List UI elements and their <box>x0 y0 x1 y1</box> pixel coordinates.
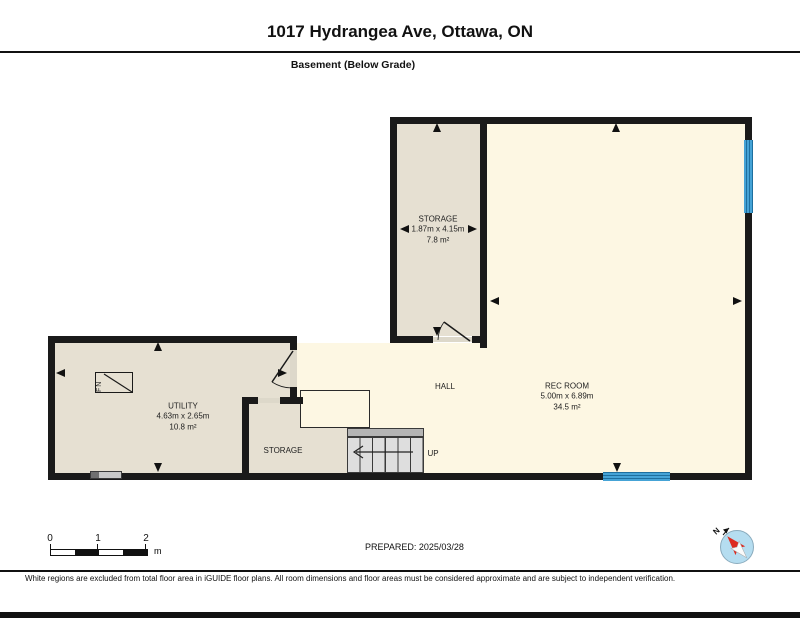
scale-bar-segments <box>50 549 148 556</box>
room-label-rec-room: REC ROOM 5.00m x 6.89m 34.5 m² <box>541 381 594 412</box>
wall <box>390 117 397 343</box>
wall <box>472 336 487 343</box>
room-label-hall: HALL <box>435 382 455 392</box>
wall <box>242 397 249 473</box>
room-area: 7.8 m² <box>427 235 450 244</box>
prepared-date: PREPARED: 2025/03/28 <box>365 542 464 552</box>
footer-divider <box>0 570 800 572</box>
wall <box>48 336 55 480</box>
bottom-bar <box>0 612 800 618</box>
room-dims: 4.63m x 2.65m <box>157 412 210 421</box>
scale-segment <box>99 550 123 555</box>
wall <box>290 343 297 350</box>
window <box>744 140 753 213</box>
scale-segment <box>51 550 75 555</box>
furnace-label: FN <box>96 374 103 392</box>
door-opening <box>258 398 280 403</box>
electrical-panel <box>90 471 122 479</box>
wall <box>390 336 433 343</box>
door-opening <box>433 337 472 342</box>
stairs-up-label: UP <box>427 449 438 459</box>
under-stair-closet <box>300 390 370 428</box>
scale-bar: 0 1 2 m <box>44 533 174 559</box>
room-label-utility: UTILITY 4.63m x 2.65m 10.8 m² <box>157 401 210 432</box>
room-name: REC ROOM <box>545 381 589 390</box>
room-rec-floor <box>480 124 745 473</box>
scale-tick-label: 2 <box>143 533 149 544</box>
wall <box>48 336 297 343</box>
floor-plan: FN STORAGE 1.87m x 4.15m 7.8 m² UTILITY … <box>0 0 800 618</box>
room-name: STORAGE <box>419 214 458 223</box>
room-area: 10.8 m² <box>169 422 196 431</box>
room-area: 34.5 m² <box>553 402 580 411</box>
wall <box>280 397 303 404</box>
stairs <box>347 437 424 473</box>
room-dims: 5.00m x 6.89m <box>541 392 594 401</box>
wall <box>480 117 487 348</box>
door-opening <box>290 350 297 387</box>
disclaimer-text: White regions are excluded from total fl… <box>25 574 675 583</box>
room-label-storage-bottom: STORAGE <box>264 446 303 456</box>
stairs-landing-edge <box>347 428 424 437</box>
room-name: UTILITY <box>168 401 198 410</box>
room-dims: 1.87m x 4.15m <box>412 225 465 234</box>
electrical-panel-detail <box>91 472 99 478</box>
wall <box>242 397 258 404</box>
scale-unit: m <box>154 546 162 556</box>
wall <box>390 117 752 124</box>
scale-tick-label: 0 <box>47 533 53 544</box>
scale-segment <box>123 550 147 555</box>
scale-segment <box>75 550 99 555</box>
window <box>603 472 670 481</box>
room-label-storage-top: STORAGE 1.87m x 4.15m 7.8 m² <box>412 214 465 245</box>
scale-tick-label: 1 <box>95 533 101 544</box>
